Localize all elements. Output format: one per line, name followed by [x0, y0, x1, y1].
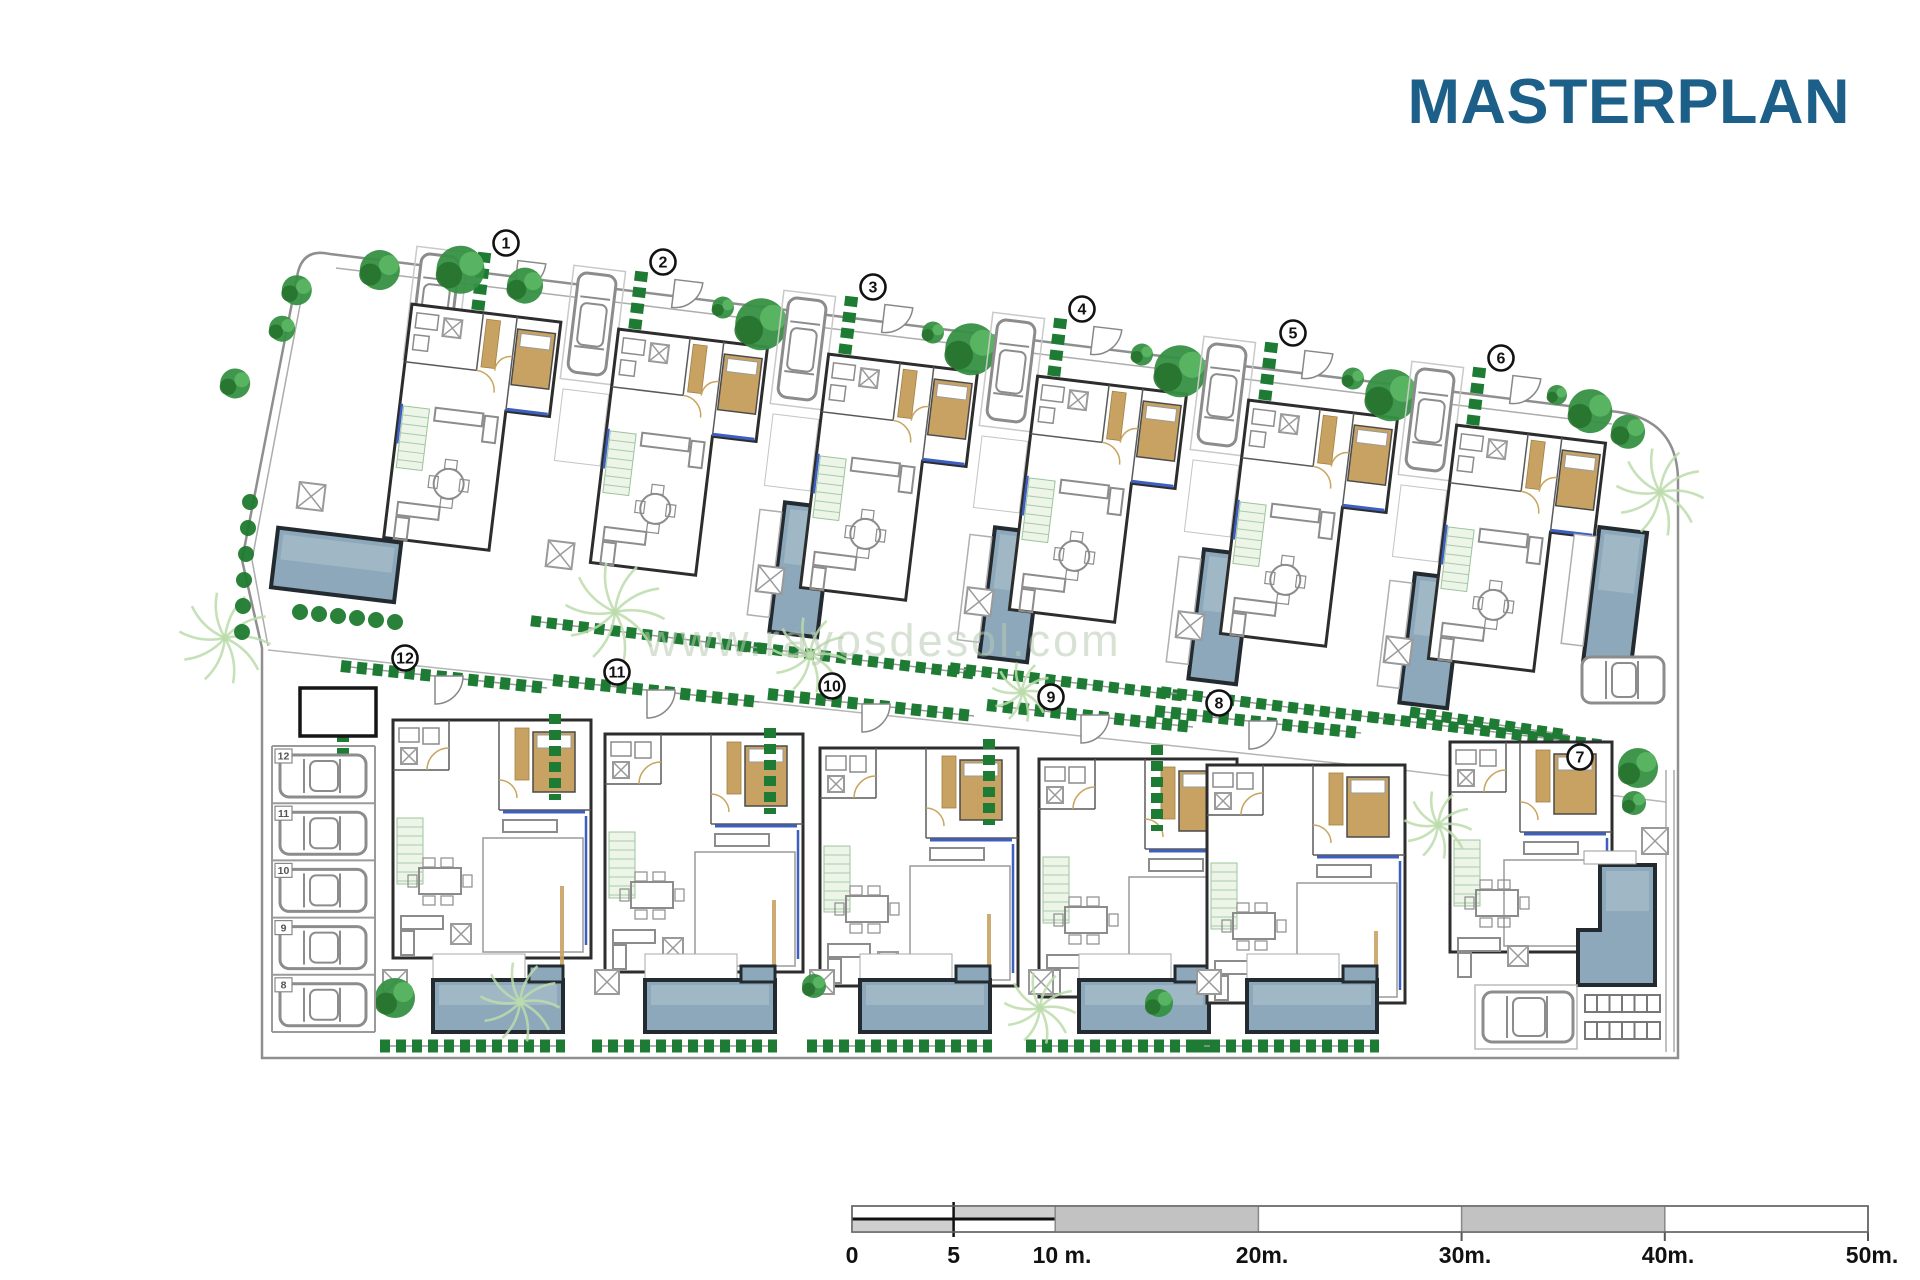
pool-deck: [860, 954, 952, 980]
tree-icon: [802, 974, 826, 998]
patio: [1184, 460, 1238, 537]
wardrobe: [1161, 767, 1175, 819]
palm-tree-icon: [1616, 449, 1703, 536]
planter-box-icon: [613, 762, 629, 778]
planter-box-icon: [1197, 970, 1221, 994]
site-plan-drawing: 12111098 123456121110987 0510 m.20m.30m.…: [0, 0, 1920, 1280]
building: [384, 304, 561, 555]
scale-bar-segment: [954, 1206, 1056, 1219]
scale-bar: 0510 m.20m.30m.40m.50m.: [846, 1202, 1899, 1268]
bush-icon: [349, 610, 365, 626]
plot-number: 7: [1576, 750, 1585, 767]
patio: [764, 414, 818, 491]
bush-icon: [311, 606, 327, 622]
parking-stall: 9: [275, 921, 366, 969]
scale-bar-segment: [1055, 1206, 1258, 1232]
terrace: [483, 838, 583, 952]
planter-box-icon: [595, 970, 619, 994]
plot-number-badge-8: 8: [1207, 691, 1232, 716]
planter-box-icon: [451, 924, 471, 944]
gate-arc: [647, 690, 675, 718]
planter-box-icon: [1279, 414, 1299, 434]
gate-arc: [435, 676, 463, 704]
villa-plot-7: [1410, 712, 1668, 1049]
car-icon: [1483, 992, 1573, 1042]
plot-number: 3: [869, 280, 878, 297]
planter-box-icon: [1047, 787, 1063, 803]
villa-plot-10: [768, 694, 1018, 1046]
plot-number: 12: [396, 651, 414, 668]
car-icon: [567, 272, 617, 376]
scale-label: 10 m.: [1033, 1242, 1092, 1268]
building: [1220, 400, 1397, 651]
patio: [973, 436, 1027, 513]
scale-label: 50m.: [1846, 1242, 1898, 1268]
planter-box-icon: [756, 565, 785, 594]
watermark: www.rayosdesol.com: [644, 615, 1122, 666]
planter-box-icon: [546, 540, 575, 569]
planter-box-icon: [442, 318, 462, 338]
planter-box-icon: [1068, 390, 1088, 410]
planter-box-icon: [1508, 946, 1528, 966]
plot-number: 6: [1497, 351, 1506, 368]
planter-box-icon: [649, 343, 669, 363]
plot-number: 2: [659, 255, 668, 272]
parking-stall: 12: [275, 749, 366, 797]
gate-arc: [862, 704, 890, 732]
wardrobe: [1536, 750, 1550, 802]
planter-box-icon: [1176, 611, 1205, 640]
parking-stall: 8: [275, 978, 366, 1026]
plot-number-badge-5: 5: [1281, 321, 1306, 346]
building: [1009, 376, 1186, 627]
building: [800, 354, 977, 605]
tree-icon: [280, 274, 313, 307]
utility-box: [300, 688, 376, 736]
building: [590, 329, 767, 580]
planter-box-icon: [1384, 636, 1413, 665]
car-icon: [1582, 657, 1664, 703]
hedge: [950, 668, 1184, 696]
tree-icon: [1618, 748, 1658, 788]
pool-deck: [1079, 954, 1171, 980]
plot-number: 1: [502, 236, 511, 253]
scale-label: 40m.: [1642, 1242, 1694, 1268]
scale-bar-segment: [1462, 1206, 1665, 1232]
plot-number: 8: [1215, 696, 1224, 713]
tree-icon: [375, 978, 415, 1018]
bush-icon: [330, 608, 346, 624]
scale-label: 0: [846, 1242, 859, 1268]
planter-box-icon: [859, 368, 879, 388]
planter-box-icon: [1215, 793, 1231, 809]
planter-box-icon: [1487, 439, 1507, 459]
bush-icon: [368, 612, 384, 628]
patio: [554, 389, 608, 466]
car-icon: [280, 755, 366, 797]
plot-number-badge-9: 9: [1039, 685, 1064, 710]
car-icon: [280, 812, 366, 854]
gate-arc: [672, 280, 703, 311]
stall-number: 10: [278, 865, 290, 877]
planter-box-icon: [401, 748, 417, 764]
pillow: [1351, 780, 1385, 793]
road-edge-right: [1666, 770, 1674, 1052]
parking-stall: 11: [275, 806, 366, 854]
car-icon: [280, 869, 366, 911]
gate-arc: [1249, 721, 1277, 749]
terrace: [695, 852, 795, 966]
wardrobe: [727, 742, 741, 794]
plot-number-badge-1: 1: [494, 231, 519, 256]
plot-number-badge-2: 2: [651, 250, 676, 275]
wardrobe: [515, 728, 529, 780]
plot-number-badge-10: 10: [820, 674, 845, 699]
bush-icon: [236, 572, 252, 588]
bush-icon: [234, 624, 250, 640]
bush-icon: [242, 494, 258, 510]
gate-arc: [882, 305, 913, 336]
plot-number-badge-3: 3: [861, 275, 886, 300]
tree-icon: [218, 367, 251, 400]
pool-deck: [645, 954, 737, 980]
pool-deck: [1247, 954, 1339, 980]
palm-tree-icon: [179, 593, 270, 684]
planter-box-icon: [297, 482, 326, 511]
tree-icon: [1145, 989, 1173, 1017]
car-icon: [280, 927, 366, 969]
plot-number: 9: [1047, 690, 1056, 707]
scale-bar-segment: [852, 1219, 954, 1232]
car-icon: [1197, 343, 1247, 447]
tree-icon: [1566, 387, 1615, 436]
pool-step: [956, 966, 990, 982]
tree-icon: [1622, 791, 1646, 815]
scale-label: 5: [947, 1242, 960, 1268]
planter-box-icon: [828, 776, 844, 792]
plot-number-badge-4: 4: [1070, 297, 1095, 322]
plot-number: 10: [823, 679, 841, 696]
plot-number-badge-6: 6: [1489, 346, 1514, 371]
pool-deck: [1584, 851, 1636, 864]
car-icon: [280, 984, 366, 1026]
plot-number: 5: [1289, 326, 1298, 343]
tree-icon: [1130, 342, 1154, 366]
tree-icon: [358, 248, 403, 293]
gate-arc: [1091, 327, 1122, 358]
stall-number: 11: [278, 808, 289, 820]
patio: [1392, 485, 1446, 562]
tree-icon: [1341, 366, 1365, 390]
bush-icon: [238, 546, 254, 562]
scale-label: 30m.: [1439, 1242, 1491, 1268]
planter-box-icon: [1642, 828, 1668, 854]
wardrobe: [942, 756, 956, 808]
bush-icon: [387, 614, 403, 630]
wardrobe: [1329, 773, 1343, 825]
scale-label: 20m.: [1236, 1242, 1288, 1268]
planter-box-icon: [1458, 770, 1474, 786]
bush-icon: [235, 598, 251, 614]
plot-number: 11: [609, 665, 626, 682]
parking-area: 12111098: [272, 688, 376, 1032]
bush-icon: [292, 604, 308, 620]
parking-stall: 10: [275, 863, 366, 911]
sofa: [1458, 953, 1471, 977]
stall-number: 8: [281, 979, 287, 991]
stall-number: 9: [281, 922, 287, 934]
tree-icon: [268, 314, 297, 343]
pool-step: [741, 966, 775, 982]
planter-box-icon: [965, 587, 994, 616]
stall-number: 12: [278, 751, 290, 763]
plot-number-badge-11: 11: [605, 660, 630, 685]
plot-number-badge-12: 12: [393, 646, 418, 671]
pool-step: [1343, 966, 1377, 982]
masterplan-page: MASTERPLAN 12111098 123456121110987 0510…: [0, 0, 1920, 1280]
bush-icon: [240, 520, 256, 536]
plot-number-badge-7: 7: [1568, 745, 1593, 770]
plot-number: 4: [1078, 302, 1087, 319]
tree-icon: [921, 320, 945, 344]
